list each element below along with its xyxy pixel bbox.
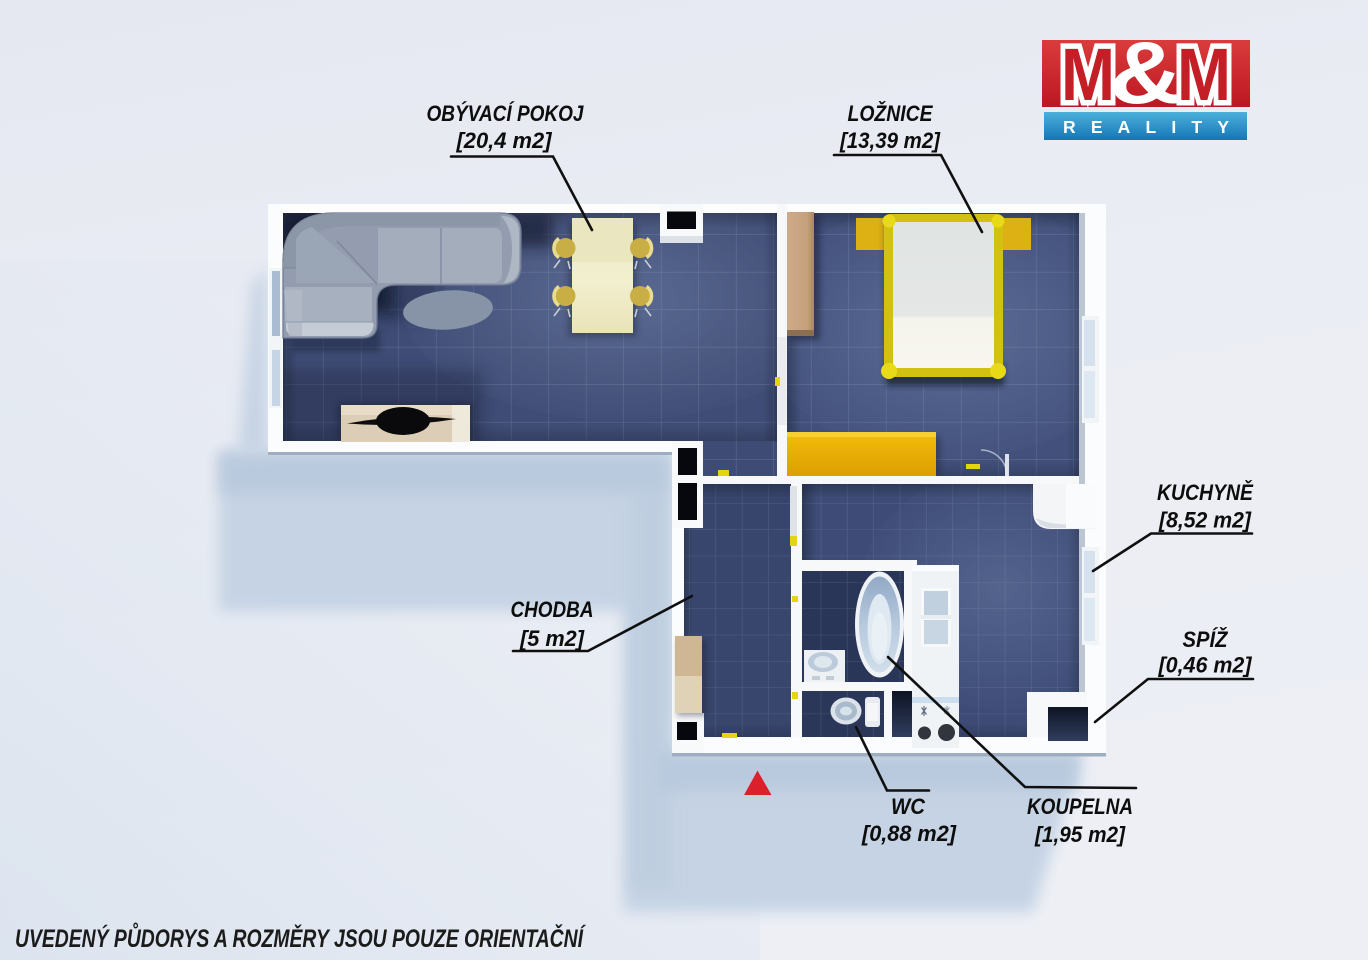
svg-text:[20,4 m2]: [20,4 m2] xyxy=(456,128,553,153)
svg-text:SPÍŽ: SPÍŽ xyxy=(1183,627,1229,652)
svg-text:M: M xyxy=(1061,33,1115,116)
svg-text:CHODBA: CHODBA xyxy=(511,597,594,622)
svg-text:[5 m2]: [5 m2] xyxy=(519,626,585,651)
svg-text:LOŽNICE: LOŽNICE xyxy=(848,101,934,126)
svg-text:WC: WC xyxy=(891,794,926,819)
svg-text:KUCHYNĚ: KUCHYNĚ xyxy=(1157,480,1254,505)
svg-text:M: M xyxy=(1177,33,1231,116)
svg-text:&: & xyxy=(1109,23,1183,122)
svg-text:[0,46 m2]: [0,46 m2] xyxy=(1158,653,1253,678)
svg-text:OBÝVACÍ POKOJ: OBÝVACÍ POKOJ xyxy=(427,101,585,126)
svg-text:KOUPELNA: KOUPELNA xyxy=(1027,794,1133,819)
svg-text:[0,88 m2]: [0,88 m2] xyxy=(861,821,957,846)
svg-text:[13,39 m2]: [13,39 m2] xyxy=(839,128,941,153)
svg-text:UVEDENÝ PŮDORYS A ROZMĚRY JSOU: UVEDENÝ PŮDORYS A ROZMĚRY JSOU POUZE ORI… xyxy=(15,921,586,953)
svg-text:[1,95 m2]: [1,95 m2] xyxy=(1034,822,1126,847)
svg-text:[8,52 m2]: [8,52 m2] xyxy=(1158,508,1252,533)
